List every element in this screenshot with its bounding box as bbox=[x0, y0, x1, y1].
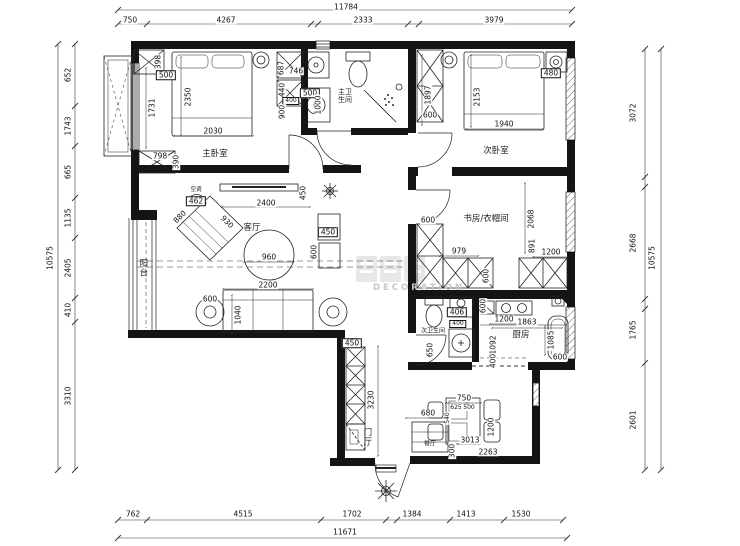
tv-cabinet bbox=[220, 184, 298, 191]
stove-icon bbox=[496, 301, 532, 315]
windows bbox=[131, 41, 575, 406]
master-bed bbox=[172, 52, 252, 136]
bed-bedroom2 bbox=[464, 52, 544, 130]
speaker-icon bbox=[319, 298, 347, 326]
window-dining bbox=[533, 383, 539, 406]
side-table bbox=[318, 214, 340, 268]
toilet-icon bbox=[346, 52, 370, 87]
rug bbox=[177, 196, 243, 260]
wardrobe-study-right bbox=[519, 258, 567, 288]
dining-table bbox=[446, 398, 480, 444]
window-kitchen bbox=[566, 307, 575, 359]
shoe-cabinet bbox=[346, 347, 365, 450]
wardrobe-bedroom2 bbox=[417, 50, 443, 122]
door-bedroom2 bbox=[418, 133, 452, 167]
door-entry bbox=[375, 463, 410, 497]
ceiling-dashed-line bbox=[137, 261, 528, 366]
balcony-rail bbox=[129, 218, 156, 331]
speaker-icon bbox=[196, 298, 224, 326]
kitchen-counter bbox=[480, 301, 567, 358]
door-study bbox=[416, 190, 450, 224]
cabinet-bedroom2 bbox=[546, 52, 567, 72]
bay-window bbox=[104, 56, 132, 156]
walls bbox=[128, 41, 575, 466]
plant-icon bbox=[375, 480, 397, 502]
washer-icon bbox=[449, 329, 474, 357]
sofa bbox=[223, 290, 313, 332]
window-study bbox=[566, 192, 575, 252]
vanity-icon bbox=[450, 297, 473, 317]
toilet-icon bbox=[425, 297, 443, 327]
floorplan-drawing bbox=[0, 0, 740, 546]
dresser-master bbox=[277, 52, 303, 106]
floorplan-canvas: 1178475042672333397976245151702138414131… bbox=[0, 0, 740, 546]
door-bath2 bbox=[416, 335, 446, 365]
round-table bbox=[244, 230, 294, 280]
shower-icon bbox=[364, 84, 402, 122]
watermark-text: DECORATION bbox=[373, 283, 465, 293]
bathtub-icon bbox=[548, 316, 568, 360]
dining-chairs bbox=[428, 400, 500, 442]
plant-icon bbox=[322, 183, 338, 199]
vent-top bbox=[316, 41, 330, 49]
nightstand-icon bbox=[253, 52, 269, 68]
